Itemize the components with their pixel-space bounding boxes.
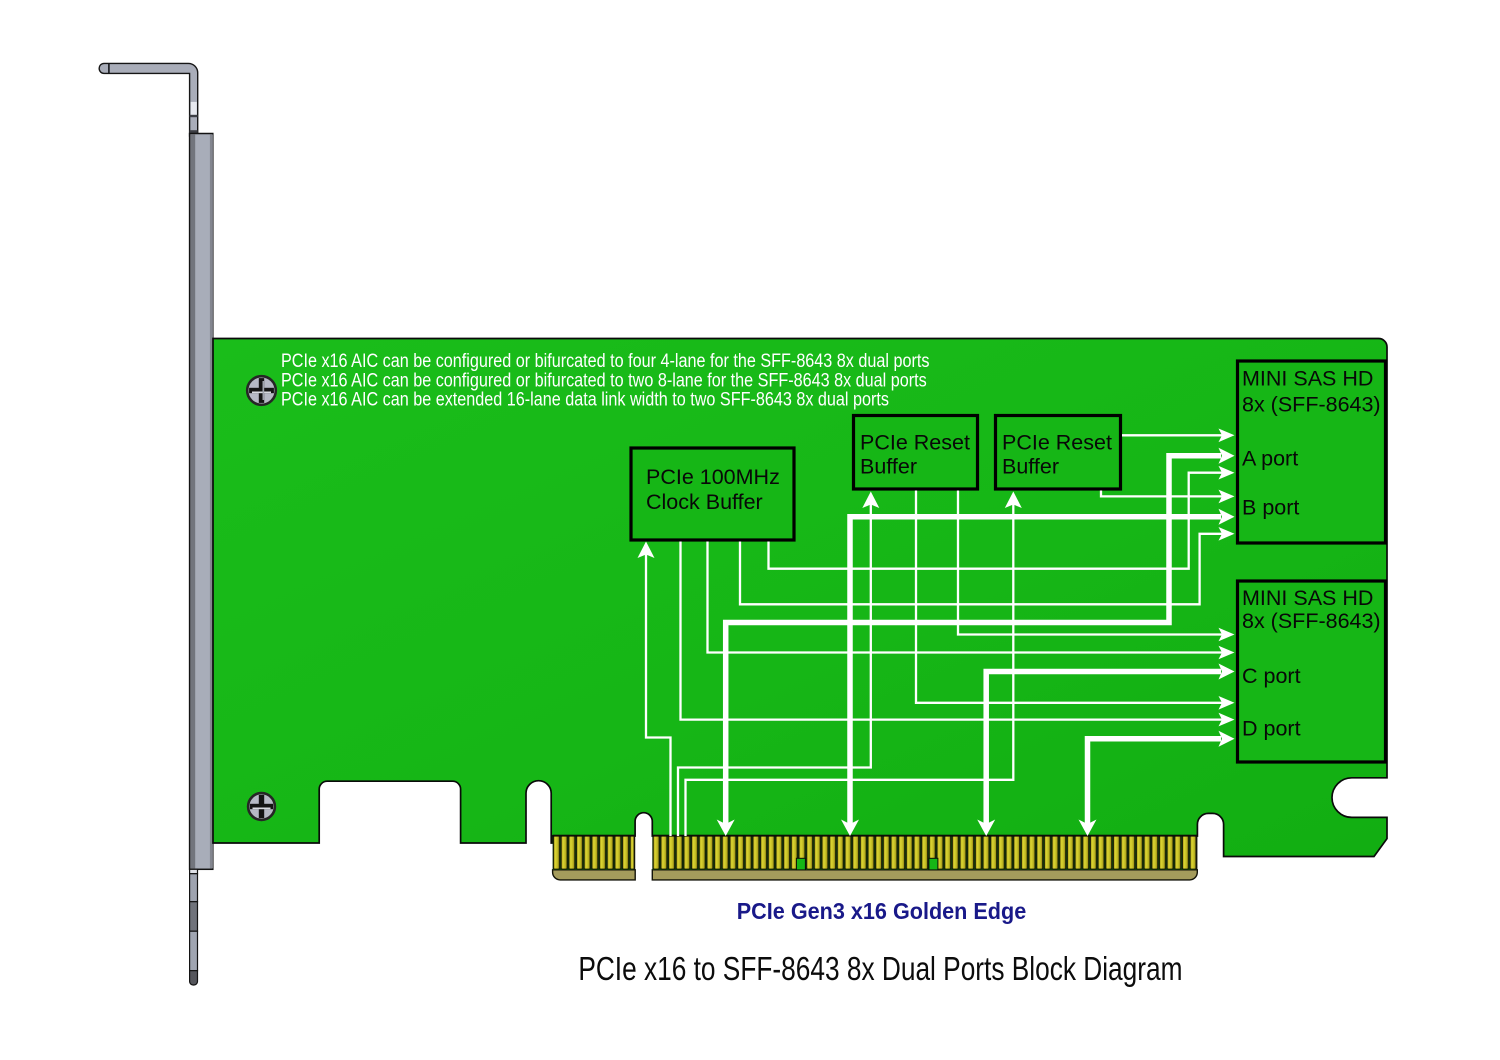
svg-text:PCIe Reset: PCIe Reset — [1002, 431, 1112, 455]
svg-text:PCIe x16 AIC can be configured: PCIe x16 AIC can be configured or bifurc… — [281, 369, 927, 391]
svg-text:8x (SFF-8643): 8x (SFF-8643) — [1242, 392, 1381, 416]
svg-text:A port: A port — [1242, 447, 1298, 471]
svg-text:PCIe 100MHz: PCIe 100MHz — [646, 465, 780, 489]
svg-text:Clock Buffer: Clock Buffer — [646, 490, 763, 514]
svg-text:PCIe x16 to SFF-8643 8x Dual P: PCIe x16 to SFF-8643 8x Dual Ports Block… — [578, 951, 1182, 988]
svg-text:Buffer: Buffer — [1002, 455, 1059, 479]
svg-text:Buffer: Buffer — [860, 455, 917, 479]
svg-text:D port: D port — [1242, 717, 1301, 741]
svg-text:PCIe Reset: PCIe Reset — [860, 431, 970, 455]
svg-text:MINI SAS HD: MINI SAS HD — [1242, 366, 1373, 390]
svg-text:PCIe x16 AIC can be extended 1: PCIe x16 AIC can be extended 16-lane dat… — [281, 388, 889, 410]
svg-text:PCIe Gen3 x16 Golden Edge: PCIe Gen3 x16 Golden Edge — [737, 898, 1026, 924]
svg-text:8x (SFF-8643): 8x (SFF-8643) — [1242, 609, 1381, 633]
svg-text:C port: C port — [1242, 664, 1301, 688]
svg-text:MINI SAS HD: MINI SAS HD — [1242, 586, 1373, 610]
svg-text:PCIe x16 AIC can be configured: PCIe x16 AIC can be configured or bifurc… — [281, 350, 930, 372]
svg-text:B port: B port — [1242, 495, 1299, 519]
